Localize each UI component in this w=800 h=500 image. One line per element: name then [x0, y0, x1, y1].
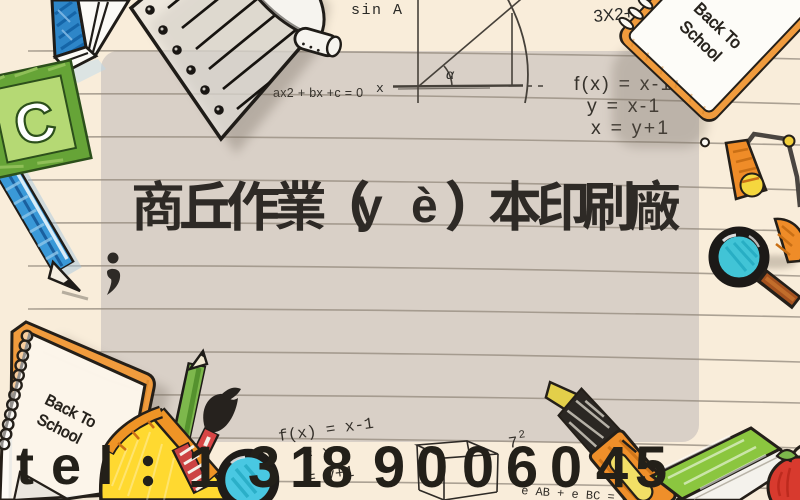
svg-text:13189006045: 13189006045 [188, 435, 667, 500]
svg-text:è: è [411, 180, 438, 233]
svg-text:y: y [356, 180, 383, 233]
svg-text:e: e [51, 436, 81, 496]
svg-text:sin A: sin A [351, 2, 404, 19]
svg-text:x: x [376, 81, 384, 96]
svg-text:l: l [98, 436, 113, 496]
svg-text:t: t [16, 436, 34, 496]
svg-text:α: α [446, 66, 455, 82]
